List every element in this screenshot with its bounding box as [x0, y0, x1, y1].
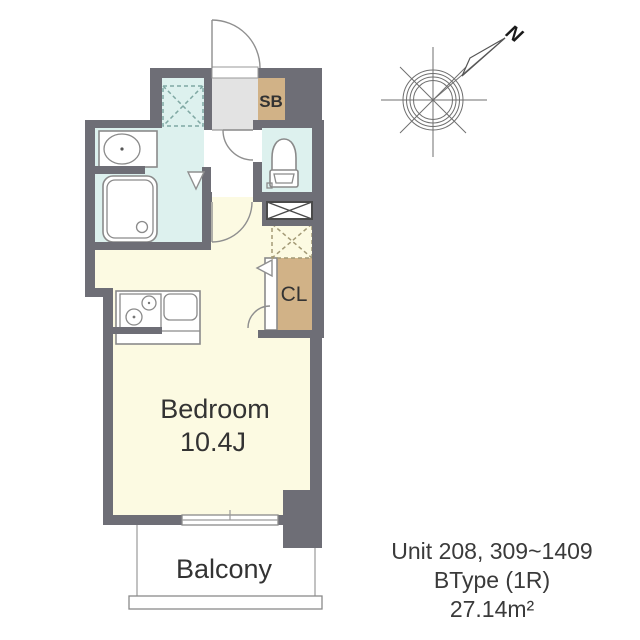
unit-numbers: Unit 208, 309~1409: [340, 537, 640, 566]
north-arrow: [433, 38, 505, 100]
bedroom-size-label: 10.4J: [180, 427, 246, 457]
bedroom-label: Bedroom: [160, 394, 270, 424]
entrance-floor: [212, 78, 258, 130]
floor-plan-page: SB CL Bedroom 10.4J Balcony N Unit 208, …: [0, 0, 640, 640]
north-label: N: [502, 21, 527, 48]
unit-area: 27.14m²: [340, 595, 640, 624]
shoe-box-label: SB: [259, 92, 283, 111]
unit-type: BType (1R): [340, 566, 640, 595]
balcony-rail: [129, 596, 322, 609]
washing-machine-box: [267, 202, 312, 219]
balcony-label: Balcony: [176, 554, 273, 584]
compass-rose: [381, 38, 505, 157]
bathtub: [103, 176, 157, 242]
closet-label: CL: [281, 283, 308, 306]
toilet-door: [223, 130, 262, 162]
entrance-door: [212, 20, 260, 78]
kitchen-counter: [116, 291, 200, 344]
washbasin-counter: [99, 131, 157, 167]
unit-info: Unit 208, 309~1409 BType (1R) 27.14m²: [340, 537, 640, 624]
